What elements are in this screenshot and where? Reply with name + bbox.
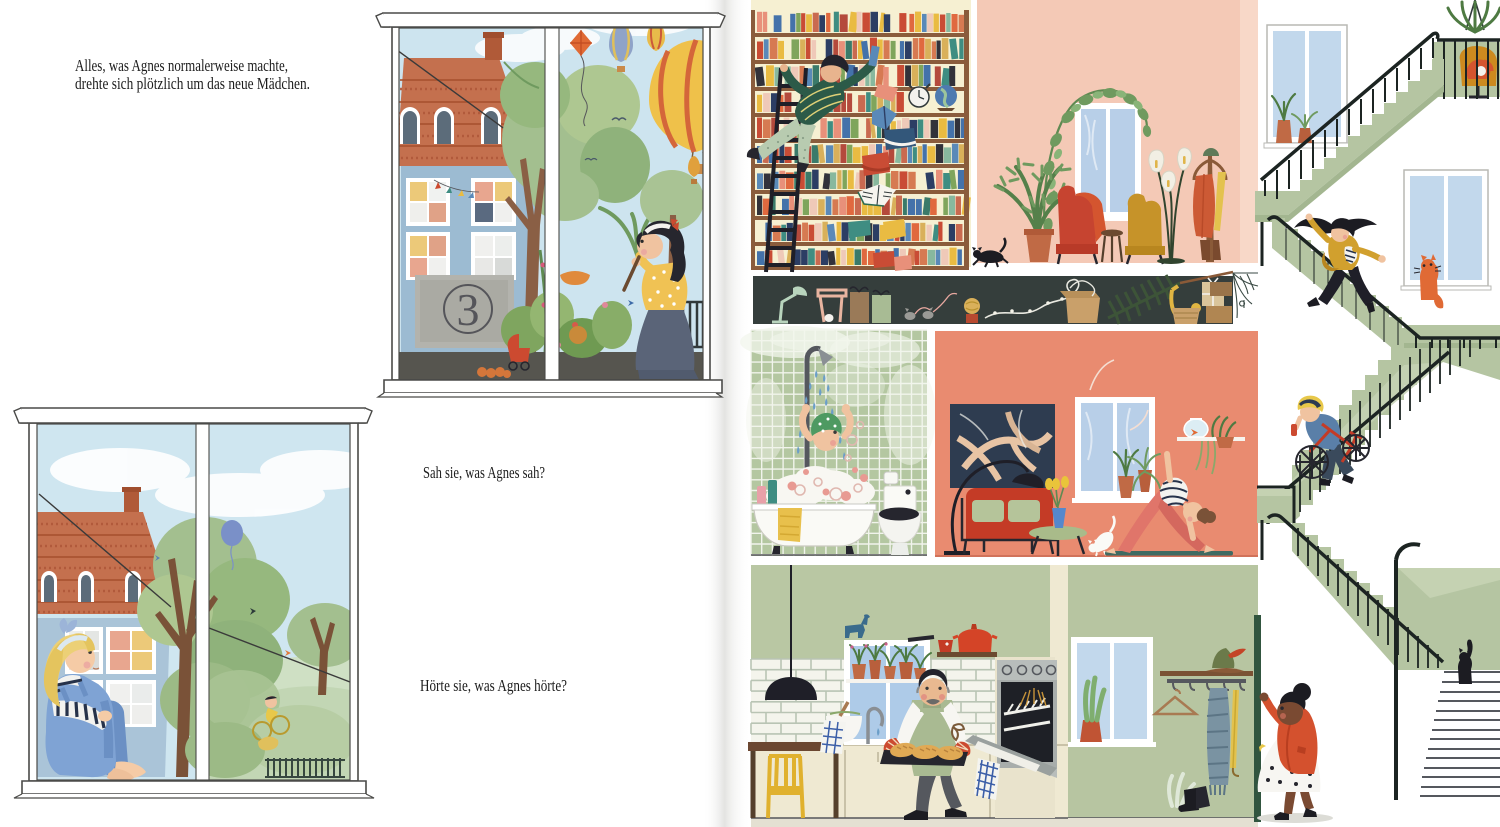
svg-text:Sah sie, was Agnes sah?: Sah sie, was Agnes sah? bbox=[423, 463, 545, 482]
svg-text:Alles, was Agnes normalerweise: Alles, was Agnes normalerweise machte, bbox=[75, 56, 288, 75]
svg-text:3: 3 bbox=[457, 284, 480, 335]
svg-text:Hörte sie, was Agnes hörte?: Hörte sie, was Agnes hörte? bbox=[420, 676, 567, 695]
svg-text:drehte sich plötzlich um das n: drehte sich plötzlich um das neue Mädche… bbox=[75, 74, 310, 93]
